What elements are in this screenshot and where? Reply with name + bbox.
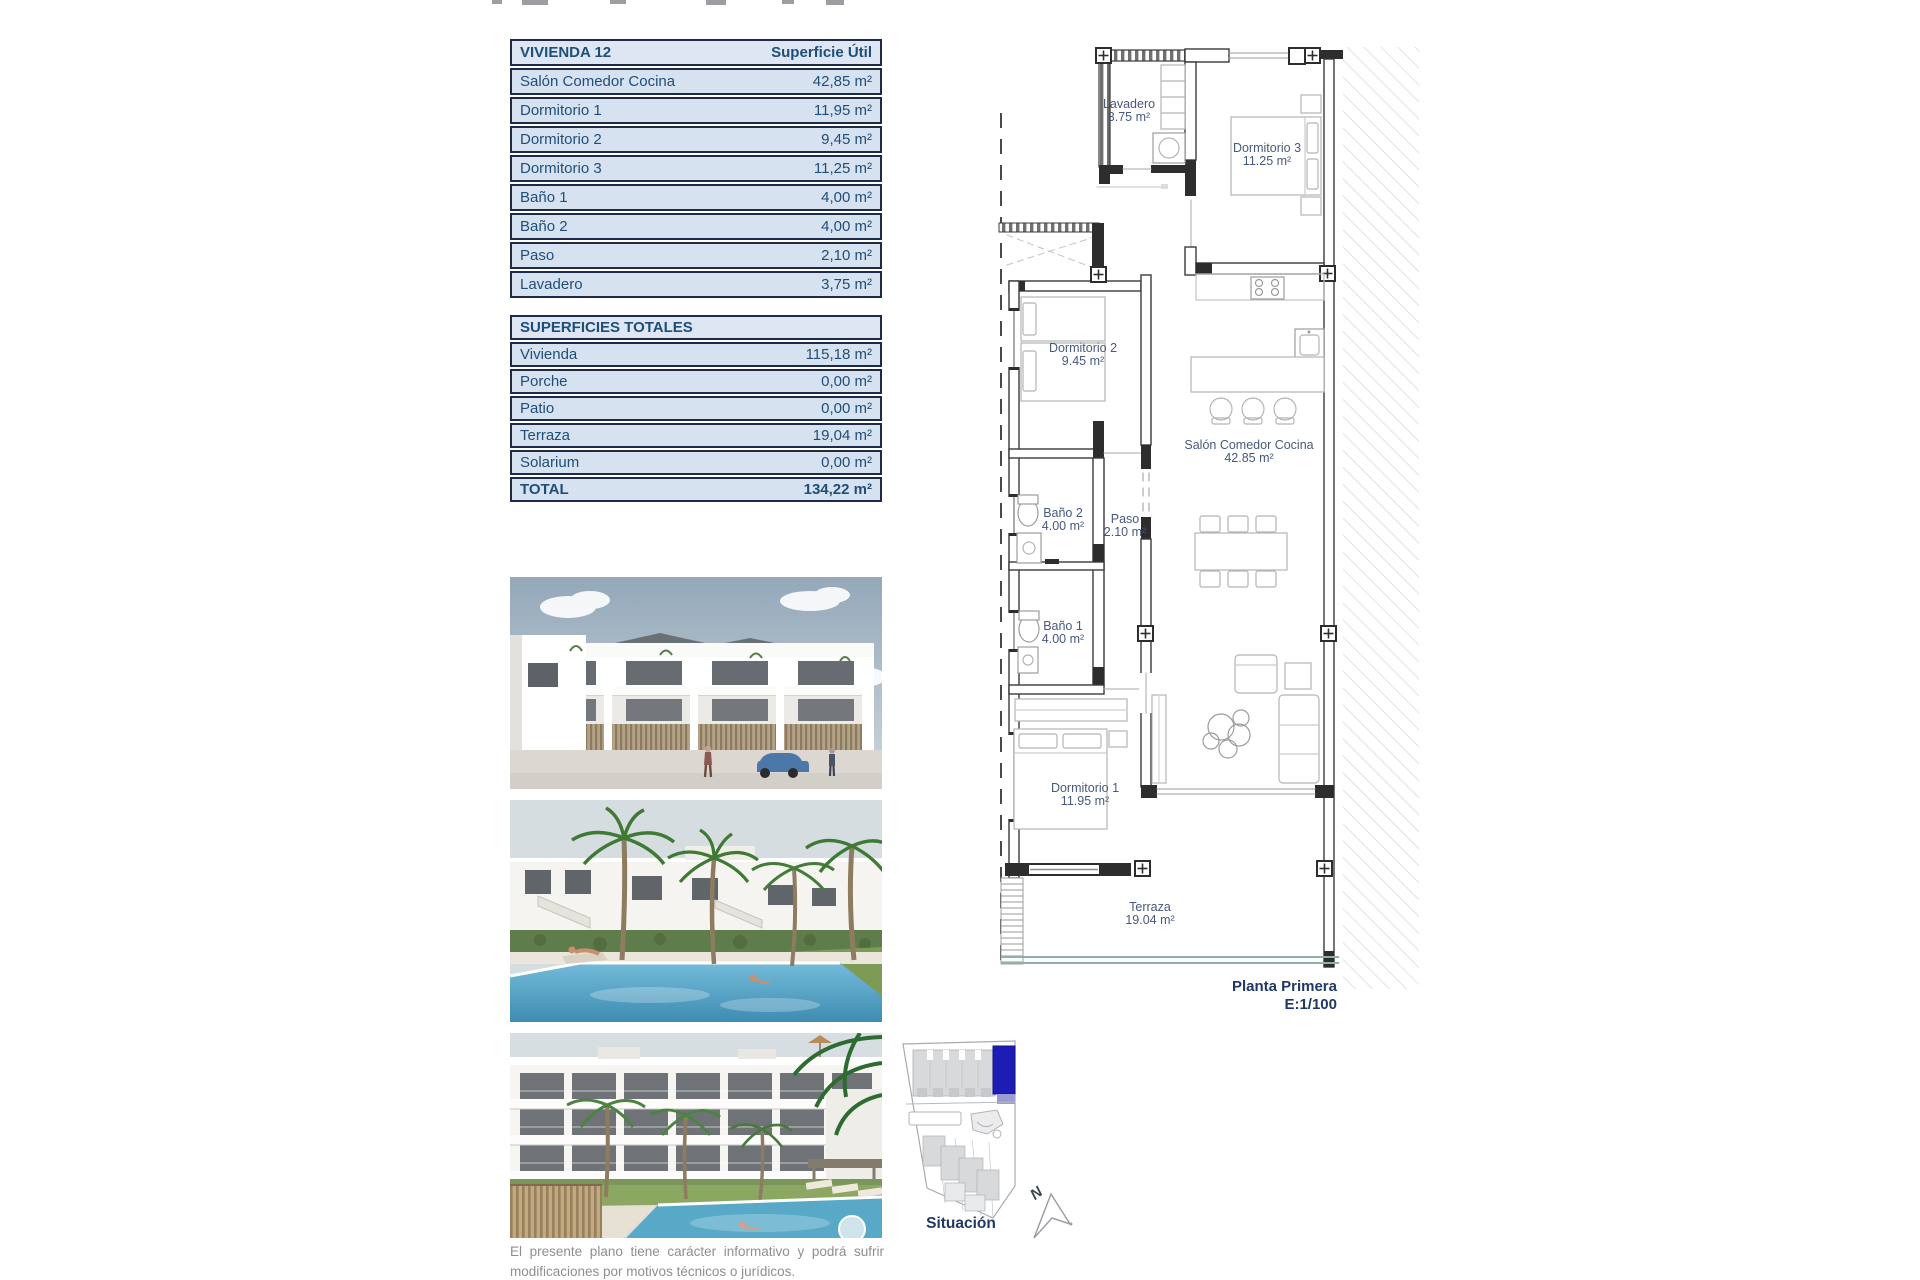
totals-table-header-row: SUPERFICIES TOTALES — [510, 315, 882, 340]
site-map-label: Situación — [898, 1215, 1024, 1233]
table-row: Vivienda115,18 m² — [510, 342, 882, 367]
cropped-text-artifact — [610, 0, 626, 4]
room-label-bano1-area: 4.00 m² — [1042, 632, 1084, 646]
superficie-util-header: Superficie Útil — [771, 44, 872, 61]
cropped-text-artifact — [492, 0, 502, 4]
room-label: Dormitorio 3 — [520, 160, 602, 177]
room-label-bano2-name: Baño 2 — [1043, 506, 1083, 520]
grand-total-value: 134,22 m² — [804, 481, 872, 498]
table-row: Solarium0,00 m² — [510, 450, 882, 475]
room-label-lavadero-area: 3.75 m² — [1108, 110, 1150, 124]
table-row: Baño 14,00 m² — [510, 184, 882, 211]
room-label-salon-area: 42.85 m² — [1224, 451, 1273, 465]
building-row — [913, 1050, 995, 1097]
room-label-terraza-name: Terraza — [1129, 900, 1171, 914]
total-area: 0,00 m² — [821, 400, 872, 417]
room-label: Salón Comedor Cocina — [520, 73, 675, 90]
floor-plan: Lavadero 3.75 m² Dormitorio 3 11.25 m² D… — [995, 35, 1465, 1040]
disclaimer-line1: El presente plano tiene carácter informa… — [510, 1242, 884, 1262]
table-row: Dormitorio 311,25 m² — [510, 155, 882, 182]
cropped-text-artifact — [522, 0, 548, 5]
room-label: Dormitorio 2 — [520, 131, 602, 148]
apartment-building — [510, 1035, 882, 1193]
plan-caption-scale: E:1/100 — [1284, 996, 1337, 1013]
table-row: Dormitorio 111,95 m² — [510, 97, 882, 124]
brochure-page: VIVIENDA 12 Superficie Útil Salón Comedo… — [0, 0, 1920, 1280]
table-row: Terraza19,04 m² — [510, 423, 882, 448]
plan-caption-title: Planta Primera — [1232, 978, 1338, 995]
room-label-paso-name: Paso — [1111, 512, 1140, 526]
total-label: Patio — [520, 400, 554, 417]
render-street-view-image — [510, 577, 882, 789]
table-row: Patio0,00 m² — [510, 396, 882, 421]
room-area: 42,85 m² — [813, 73, 872, 90]
unit-areas-table: VIVIENDA 12 Superficie Útil Salón Comedo… — [510, 39, 882, 300]
total-label: Solarium — [520, 454, 579, 471]
table-row: Paso2,10 m² — [510, 242, 882, 269]
disclaimer: El presente plano tiene carácter informa… — [510, 1242, 884, 1280]
room-label-bano1-name: Baño 1 — [1043, 619, 1083, 633]
room-area: 2,10 m² — [821, 247, 872, 264]
wood-fence — [510, 1185, 602, 1238]
terraced-houses — [510, 633, 874, 750]
room-label-lavadero-name: Lavadero — [1103, 97, 1155, 111]
room-area: 11,25 m² — [814, 160, 872, 177]
table-row: Lavadero3,75 m² — [510, 271, 882, 298]
unit-title: VIVIENDA 12 — [520, 44, 611, 61]
cropped-text-artifact — [826, 0, 844, 5]
grand-total-label: TOTAL — [520, 481, 569, 498]
room-area: 11,95 m² — [814, 102, 872, 119]
room-label-dormitorio2-name: Dormitorio 2 — [1049, 341, 1117, 355]
cropped-text-artifact — [782, 0, 794, 4]
room-label: Paso — [520, 247, 554, 264]
total-label: Porche — [520, 373, 568, 390]
room-label-dormitorio1-area: 11.95 m² — [1061, 794, 1109, 808]
total-area: 0,00 m² — [821, 373, 872, 390]
total-label: Terraza — [520, 427, 570, 444]
room-label-dormitorio3-area: 11.25 m² — [1243, 154, 1291, 168]
table-row: Porche0,00 m² — [510, 369, 882, 394]
room-area: 3,75 m² — [821, 276, 872, 293]
totals-title: SUPERFICIES TOTALES — [520, 319, 693, 336]
room-label-salon-name: Salón Comedor Cocina — [1184, 438, 1313, 452]
room-label-dormitorio3-name: Dormitorio 3 — [1233, 141, 1301, 155]
room-label-paso-area: 2.10 m² — [1104, 525, 1146, 539]
total-area: 19,04 m² — [813, 427, 872, 444]
background-buildings — [510, 846, 882, 934]
table-row: Dormitorio 29,45 m² — [510, 126, 882, 153]
totals-table: SUPERFICIES TOTALES Vivienda115,18 m² Po… — [510, 315, 882, 504]
room-label-dormitorio1-name: Dormitorio 1 — [1051, 781, 1119, 795]
room-label: Baño 2 — [520, 218, 568, 235]
room-area: 4,00 m² — [821, 189, 872, 206]
room-label-dormitorio2-area: 9.45 m² — [1062, 354, 1104, 368]
stairs — [1001, 878, 1023, 964]
highlighted-unit — [993, 1046, 1015, 1094]
room-label: Dormitorio 1 — [520, 102, 602, 119]
compass-n-letter: N — [1027, 1183, 1047, 1204]
cropped-text-artifact — [706, 0, 726, 5]
room-area: 9,45 m² — [821, 131, 872, 148]
site-location-map — [893, 1038, 1023, 1243]
spa — [839, 1216, 865, 1238]
compass-north-icon: N — [1022, 1180, 1082, 1249]
table-row: Baño 24,00 m² — [510, 213, 882, 240]
total-label: Vivienda — [520, 346, 577, 363]
adjacent-plot-hatch — [1343, 47, 1419, 989]
table-row: Salón Comedor Cocina42,85 m² — [510, 68, 882, 95]
room-label-terraza-area: 19.04 m² — [1125, 913, 1174, 927]
total-area: 115,18 m² — [806, 346, 872, 363]
room-label-bano2-area: 4.00 m² — [1042, 519, 1084, 533]
room-area: 4,00 m² — [821, 218, 872, 235]
render-building-pool-image — [510, 1033, 882, 1238]
disclaimer-line2: modificaciones por motivos técnicos o ju… — [510, 1262, 884, 1280]
room-label: Lavadero — [520, 276, 583, 293]
total-area: 0,00 m² — [821, 454, 872, 471]
unit-table-header-row: VIVIENDA 12 Superficie Útil — [510, 39, 882, 66]
grand-total-row: TOTAL134,22 m² — [510, 477, 882, 502]
render-pool-view-image — [510, 800, 882, 1022]
room-label: Baño 1 — [520, 189, 568, 206]
